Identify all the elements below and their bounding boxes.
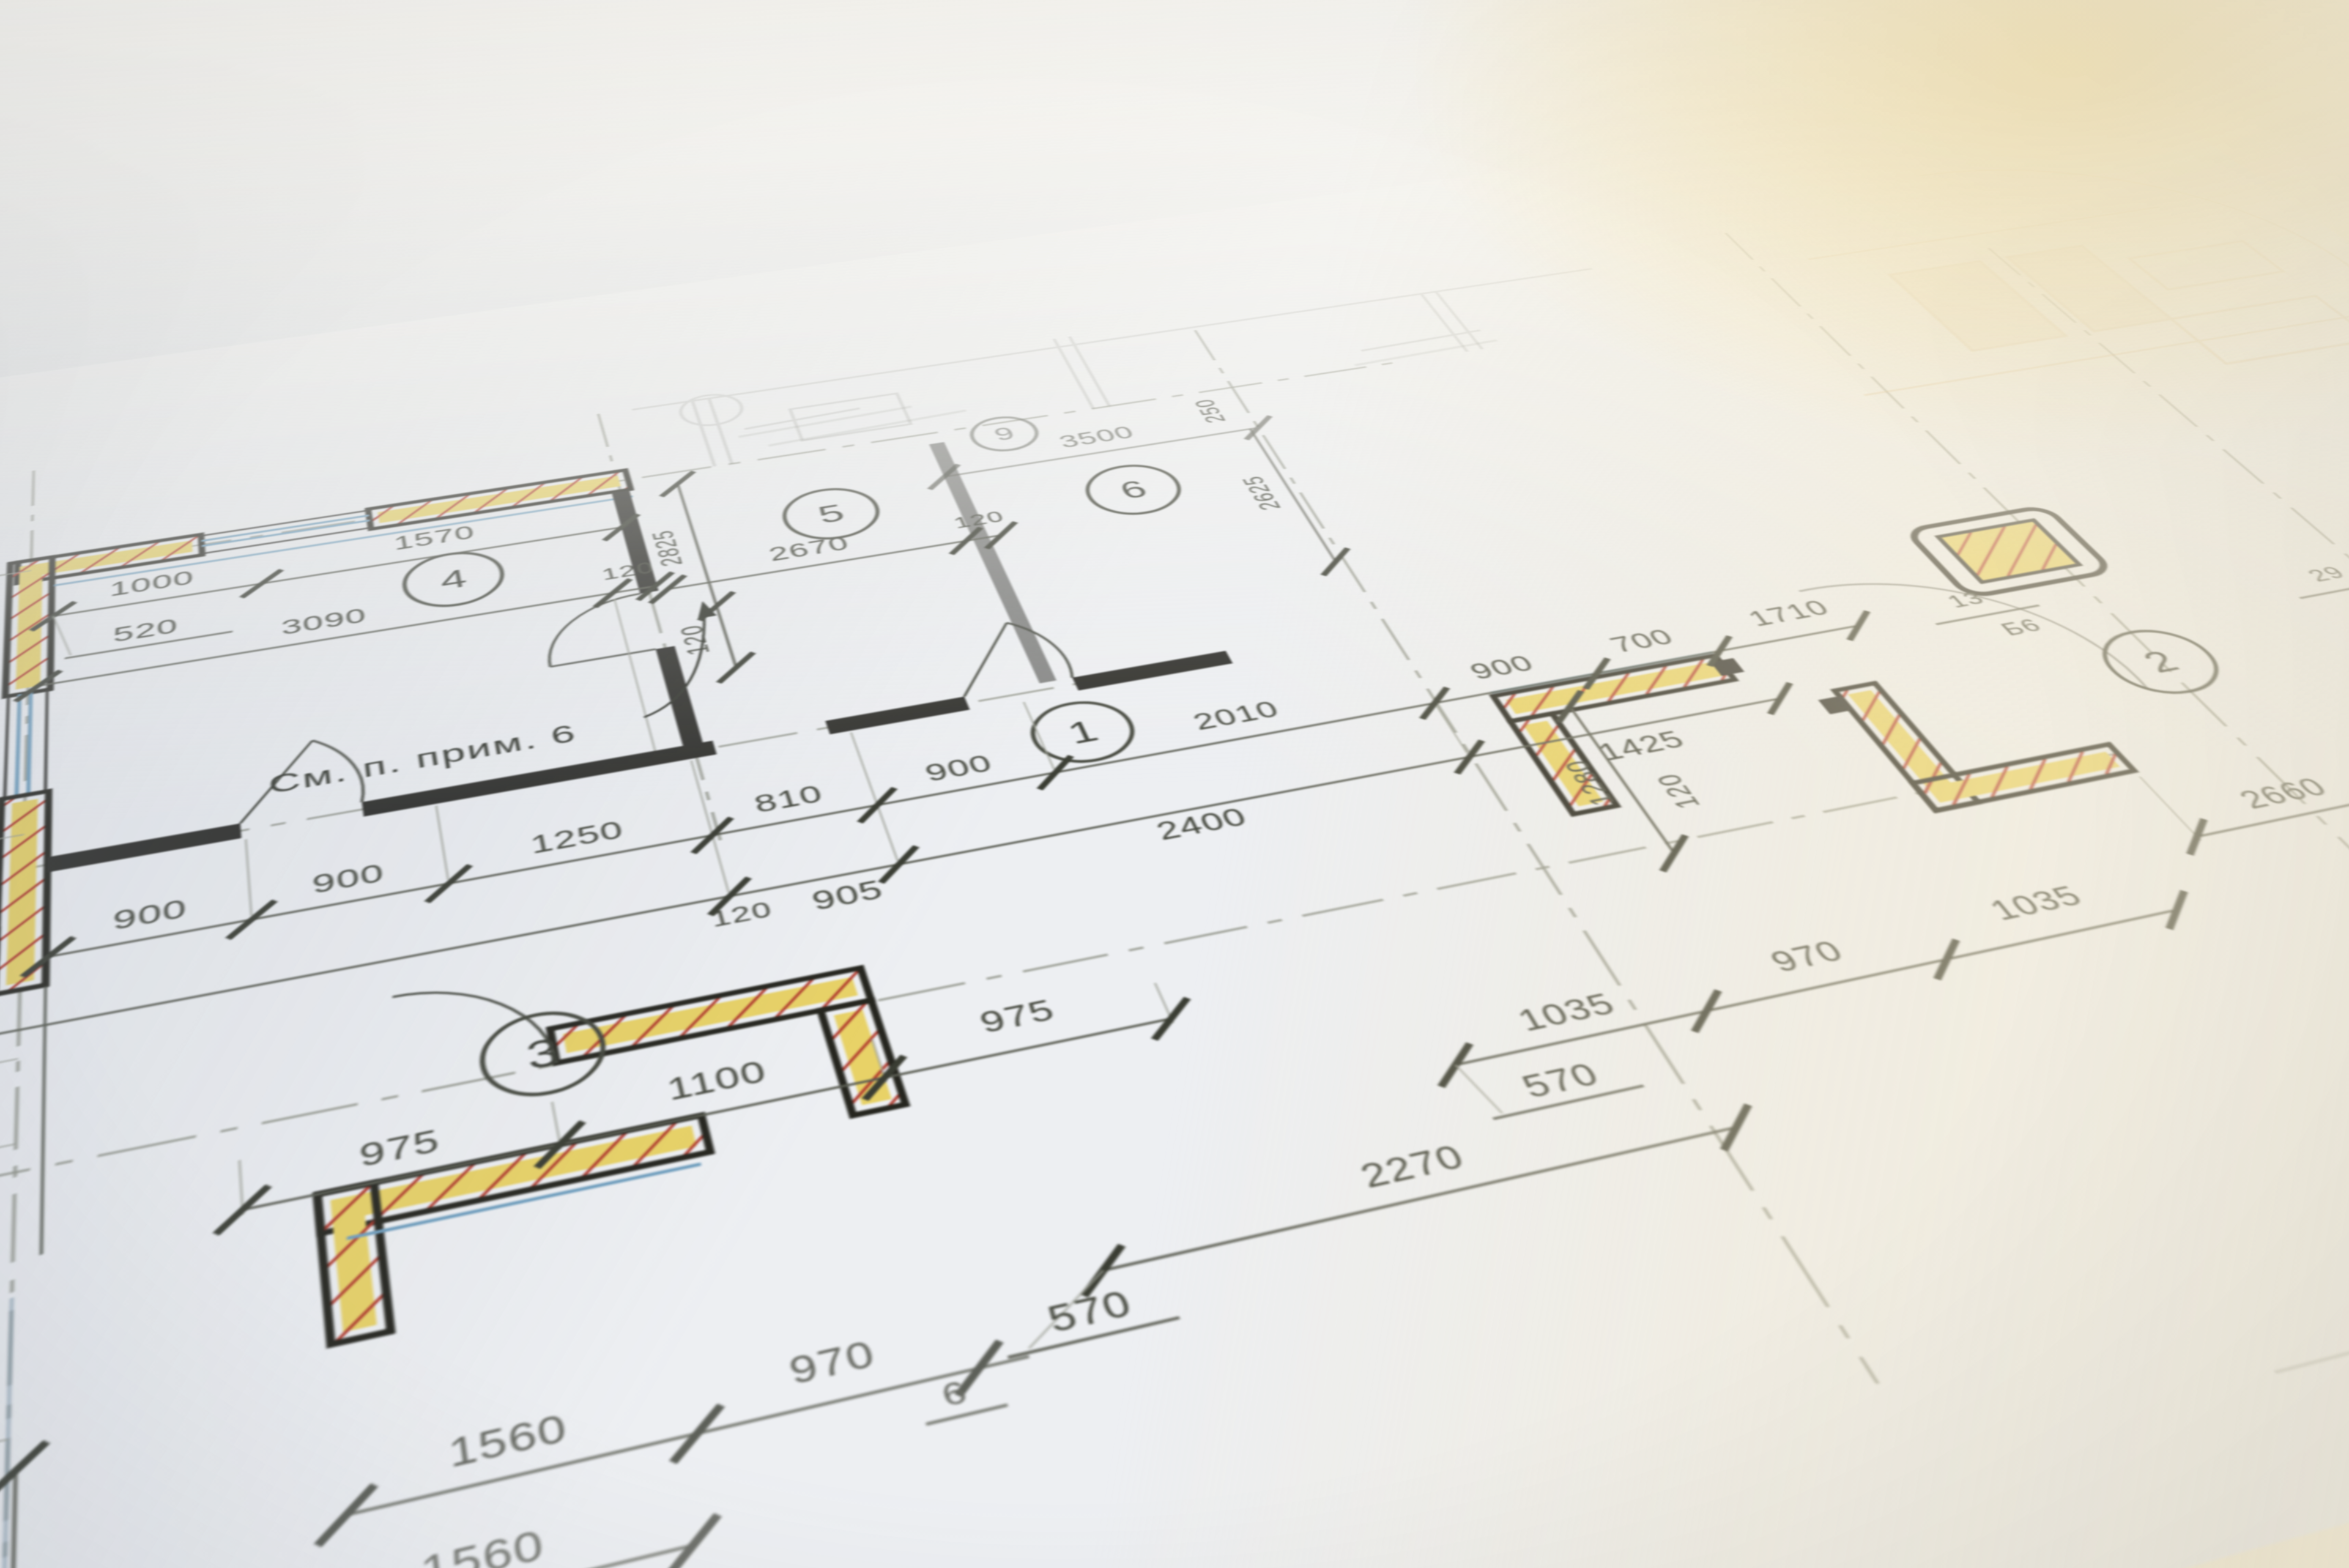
floor-plan-svg: 15650 4830 3270 1080 3270 4400 1075 1075	[0, 85, 2349, 1568]
blueprint-photo: 15650 4830 3270 1080 3270 4400 1075 1075	[0, 0, 2349, 1568]
drawing-sheet: 15650 4830 3270 1080 3270 4400 1075 1075	[0, 85, 2349, 1568]
room-number: 4	[438, 564, 469, 595]
